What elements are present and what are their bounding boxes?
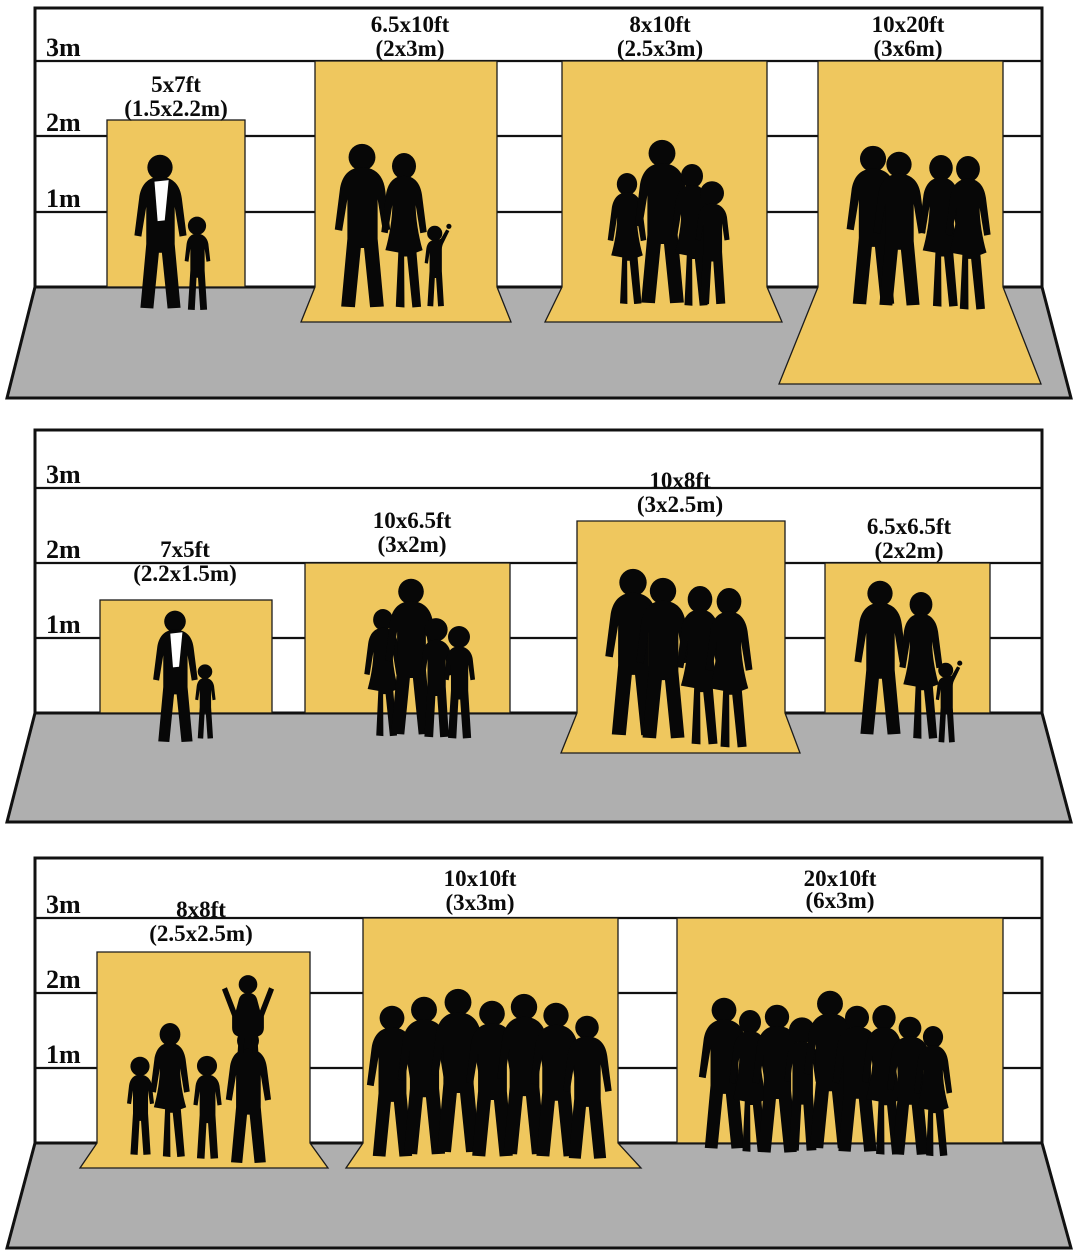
backdrop-size-label-ft: 10x10ft [444,866,517,891]
backdrop-size-label-ft: 8x10ft [629,12,691,37]
backdrop-size-label-m: (3x3m) [446,890,515,915]
backdrop-size-label-m: (6x3m) [806,888,875,913]
backdrop-size-label-m: (2.5x3m) [617,36,703,61]
meter-label-3m: 3m [46,890,81,919]
meter-label-1m: 1m [46,1040,81,1069]
backdrop-size-label-m: (3x2m) [378,532,447,557]
diagram-svg: 3m 2m 1m 5x7ft (1.5x2.2m) 6.5x10ft (2x3m… [0,0,1080,1253]
meter-label-3m: 3m [46,460,81,489]
backdrop-size-label-m: (3x2.5m) [637,492,723,517]
meter-label-1m: 1m [46,184,81,213]
backdrop-size-label-m: (2.5x2.5m) [149,921,252,946]
meter-label-2m: 2m [46,965,81,994]
backdrop-size-label-m: (3x6m) [874,36,943,61]
backdrop-size-label-m: (1.5x2.2m) [124,96,227,121]
backdrop-size-label-ft: 5x7ft [151,72,201,97]
backdrop-size-label-ft: 8x8ft [176,897,226,922]
backdrop-size-label-ft: 10x8ft [649,468,711,493]
backdrop-size-label-m: (2.2x1.5m) [133,561,236,586]
backdrop-size-label-ft: 6.5x6.5ft [867,514,952,539]
meter-label-1m: 1m [46,610,81,639]
panel-2: 3m 2m 1m 7x5ft (2.2x1.5m) 10x6.5ft (3x2m… [7,430,1071,822]
backdrop-size-comparison-diagram: 3m 2m 1m 5x7ft (1.5x2.2m) 6.5x10ft (2x3m… [0,0,1080,1253]
backdrop-size-label-m: (2x2m) [875,538,944,563]
backdrop-size-label-ft: 6.5x10ft [371,12,450,37]
panel-1: 3m 2m 1m 5x7ft (1.5x2.2m) 6.5x10ft (2x3m… [7,8,1071,398]
meter-label-3m: 3m [46,33,81,62]
backdrop-size-label-ft: 7x5ft [160,537,210,562]
meter-label-2m: 2m [46,108,81,137]
backdrop-size-label-m: (2x3m) [376,36,445,61]
panel-3: 3m 2m 1m 8x8ft (2.5x2.5m) 10x10ft (3x3m)… [7,858,1071,1248]
backdrop-size-label-ft: 10x20ft [872,12,945,37]
backdrop-size-label-ft: 10x6.5ft [373,508,452,533]
meter-label-2m: 2m [46,535,81,564]
